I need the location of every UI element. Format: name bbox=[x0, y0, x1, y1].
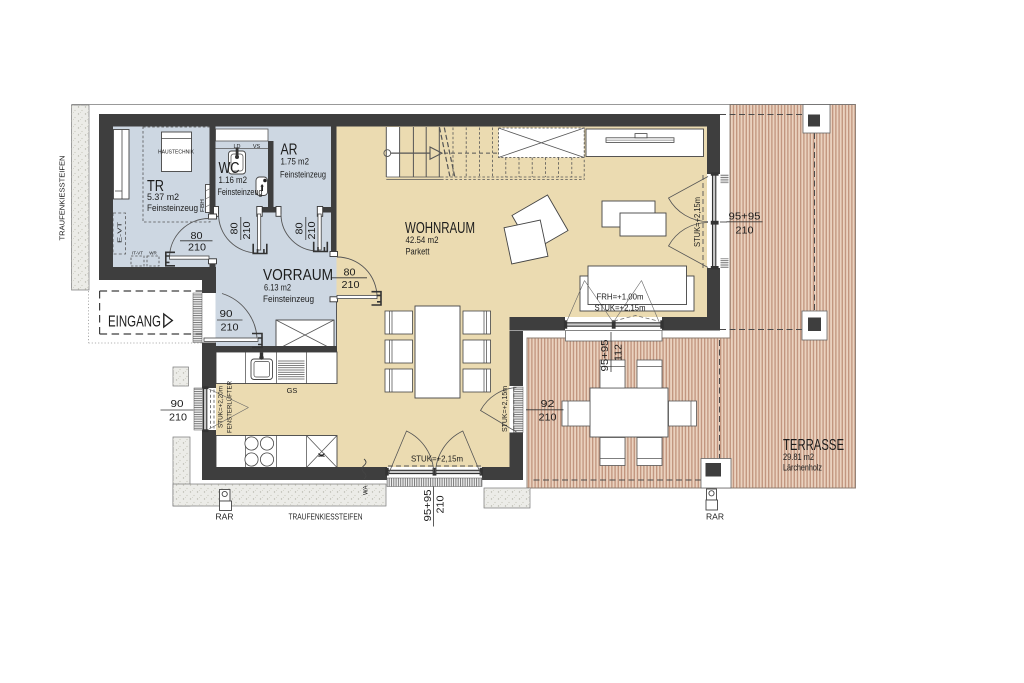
svg-text:1.16 m2: 1.16 m2 bbox=[219, 175, 248, 186]
svg-text:WA: WA bbox=[364, 486, 370, 495]
svg-text:Lärchenholz: Lärchenholz bbox=[783, 463, 822, 474]
svg-text:HAUSTECHNIK: HAUSTECHNIK bbox=[158, 150, 195, 156]
svg-text:VS: VS bbox=[253, 144, 261, 150]
svg-text:TRAUFENKIESSTEIFEN: TRAUFENKIESSTEIFEN bbox=[58, 156, 67, 241]
svg-text:80: 80 bbox=[230, 222, 241, 234]
svg-text:E-VT: E-VT bbox=[118, 222, 124, 243]
svg-text:210: 210 bbox=[307, 221, 318, 239]
svg-text:RAR: RAR bbox=[706, 512, 724, 522]
svg-text:29.81 m2: 29.81 m2 bbox=[783, 452, 814, 463]
svg-text:STUK=+2,15m: STUK=+2,15m bbox=[411, 454, 463, 464]
svg-text:IT-VT: IT-VT bbox=[132, 251, 143, 256]
svg-text:90: 90 bbox=[171, 399, 185, 410]
svg-text:210: 210 bbox=[242, 221, 253, 239]
svg-text:210: 210 bbox=[342, 280, 360, 291]
svg-text:95+95: 95+95 bbox=[423, 489, 434, 521]
svg-text:210: 210 bbox=[736, 226, 754, 237]
svg-text:GS: GS bbox=[287, 386, 298, 395]
svg-text:Feinsteinzeug: Feinsteinzeug bbox=[280, 170, 326, 181]
svg-text:6.13 m2: 6.13 m2 bbox=[264, 282, 291, 293]
svg-text:210: 210 bbox=[169, 413, 187, 424]
svg-text:STUK=+2,15m: STUK=+2,15m bbox=[693, 197, 702, 247]
svg-text:80: 80 bbox=[344, 268, 356, 279]
svg-text:FENSTERLÜFTER: FENSTERLÜFTER bbox=[226, 381, 234, 433]
svg-text:42.54 m2: 42.54 m2 bbox=[406, 235, 439, 246]
svg-text:112: 112 bbox=[614, 344, 625, 361]
svg-text:FBH: FBH bbox=[200, 198, 206, 212]
svg-text:95+95: 95+95 bbox=[600, 339, 611, 371]
svg-text:80: 80 bbox=[295, 222, 306, 234]
svg-text:WR: WR bbox=[149, 251, 157, 256]
svg-text:STUK=+2,15m: STUK=+2,15m bbox=[500, 386, 509, 432]
svg-text:EINGANG: EINGANG bbox=[108, 314, 161, 331]
svg-text:5.37 m2: 5.37 m2 bbox=[147, 192, 179, 203]
svg-text:STUK=+2,15m: STUK=+2,15m bbox=[595, 303, 646, 313]
svg-text:Parkett: Parkett bbox=[406, 246, 430, 257]
svg-text:90: 90 bbox=[220, 309, 234, 320]
svg-text:92: 92 bbox=[541, 399, 556, 410]
svg-text:Feinsteinzeug: Feinsteinzeug bbox=[263, 294, 314, 305]
svg-text:210: 210 bbox=[221, 323, 239, 334]
svg-text:210: 210 bbox=[188, 243, 206, 254]
svg-text:TRAUFENKIESSTEIFEN: TRAUFENKIESSTEIFEN bbox=[289, 512, 363, 522]
svg-text:STUK=+2,20m: STUK=+2,20m bbox=[218, 386, 225, 428]
svg-text:80: 80 bbox=[191, 231, 203, 242]
svg-text:95+95: 95+95 bbox=[729, 212, 761, 223]
svg-text:FRH=+1,00m: FRH=+1,00m bbox=[597, 292, 644, 302]
svg-text:RAR: RAR bbox=[216, 512, 234, 522]
svg-text:210: 210 bbox=[539, 413, 557, 424]
svg-text:1.75 m2: 1.75 m2 bbox=[281, 157, 310, 168]
svg-text:Feinsteinzeug: Feinsteinzeug bbox=[147, 203, 198, 214]
svg-text:Feinsteinzeug: Feinsteinzeug bbox=[218, 187, 263, 198]
svg-text:210: 210 bbox=[436, 495, 447, 513]
